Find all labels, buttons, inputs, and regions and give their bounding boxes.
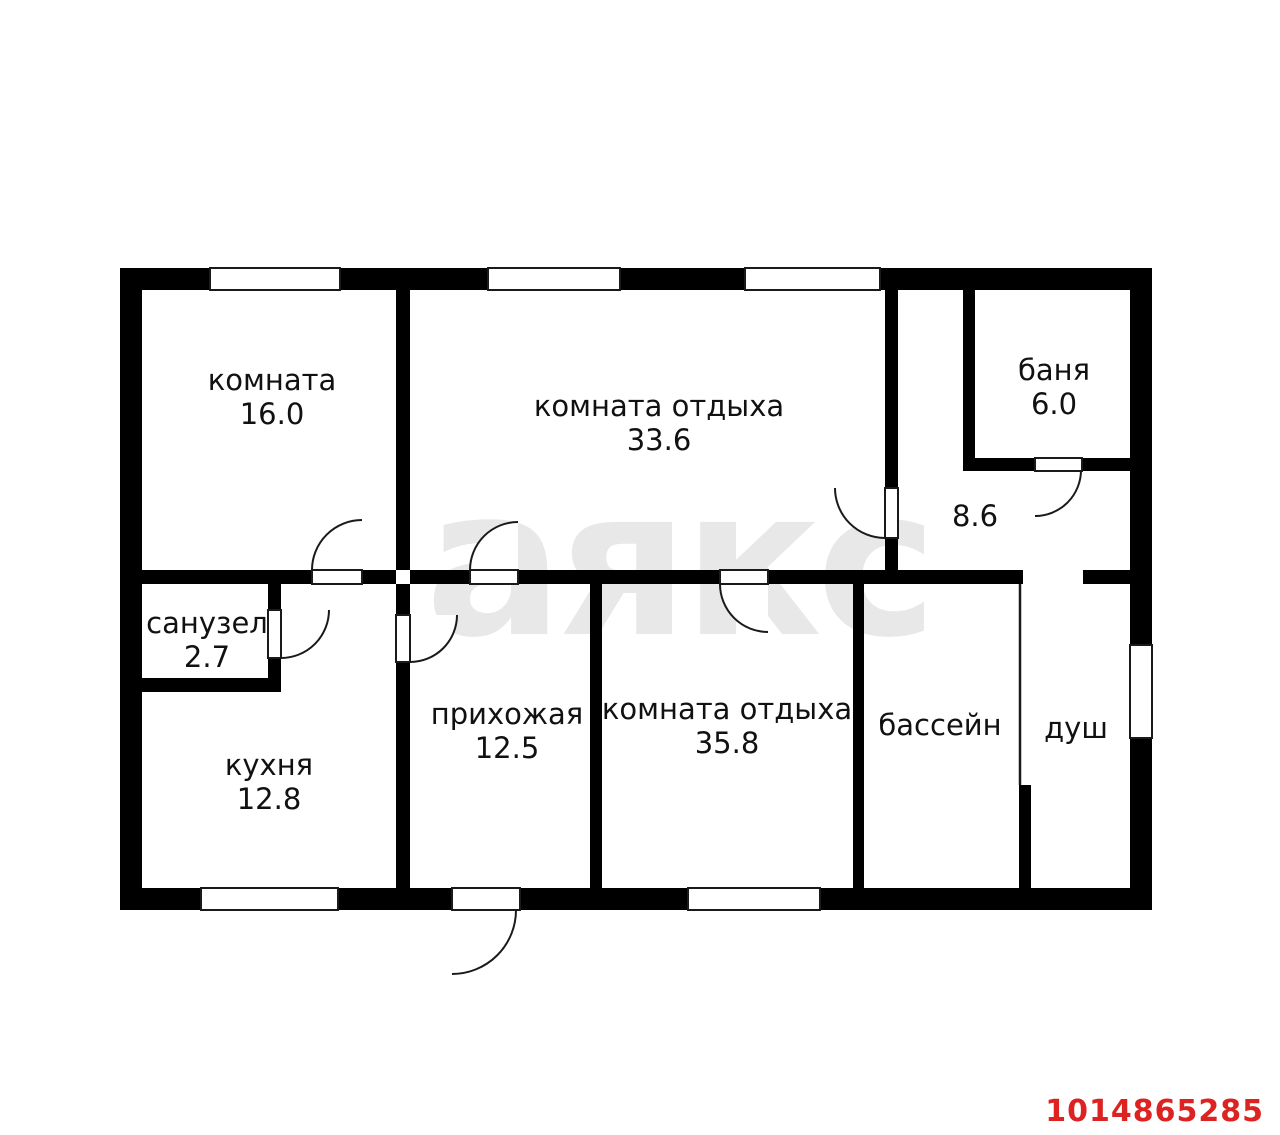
room-label-rest35: комната отдыха 35.8 [602,692,852,760]
plan-graphics [0,0,1280,1135]
door-entrance [452,888,520,974]
room-area: 8.6 [952,499,998,533]
room-area: 12.8 [225,782,313,816]
door-kitchen-prihozhaya [396,615,457,662]
room-name: комната отдыха [534,389,784,423]
listing-id: 1014865285 [1045,1094,1264,1129]
room-area: 33.6 [534,423,784,457]
room-label-banya: баня 6.0 [1018,353,1090,421]
room-label-pool: бассейн [878,708,1001,742]
window-rest33-top-2 [745,268,880,290]
door-rest33-rest35 [720,570,768,632]
room-area: 6.0 [1018,387,1090,421]
room-name: баня [1018,353,1090,387]
window-room16-top [210,268,340,290]
room-label-sanuzel: санузел 2.7 [146,606,268,674]
room-label-kitchen: кухня 12.8 [225,748,313,816]
room-name: комната [208,363,337,397]
room-name: душ [1044,711,1108,745]
floor-plan-canvas: аякс [0,0,1280,1135]
room-area: 35.8 [602,726,852,760]
window-shower-right [1130,645,1152,738]
window-rest35-bottom [688,888,820,910]
room-label-prihozhaya: прихожая 12.5 [431,697,583,765]
window-kitchen-bottom [201,888,338,910]
room-label-corridor-86: 8.6 [952,499,998,533]
door-rest33-prihozhaya [470,522,518,584]
room-label-rest33: комната отдыха 33.6 [534,389,784,457]
room-label-shower: душ [1044,711,1108,745]
room-name: комната отдыха [602,692,852,726]
window-rest33-top-1 [488,268,620,290]
room-area: 16.0 [208,397,337,431]
room-label-room16: комната 16.0 [208,363,337,431]
room-name: санузел [146,606,268,640]
room-name: кухня [225,748,313,782]
room-name: прихожая [431,697,583,731]
door-rest33-corridor [835,488,898,538]
room-area: 12.5 [431,731,583,765]
room-name: бассейн [878,708,1001,742]
room-area: 2.7 [146,640,268,674]
door-sanuzel [268,610,329,658]
door-room16 [312,520,362,584]
door-banya [1035,458,1082,516]
